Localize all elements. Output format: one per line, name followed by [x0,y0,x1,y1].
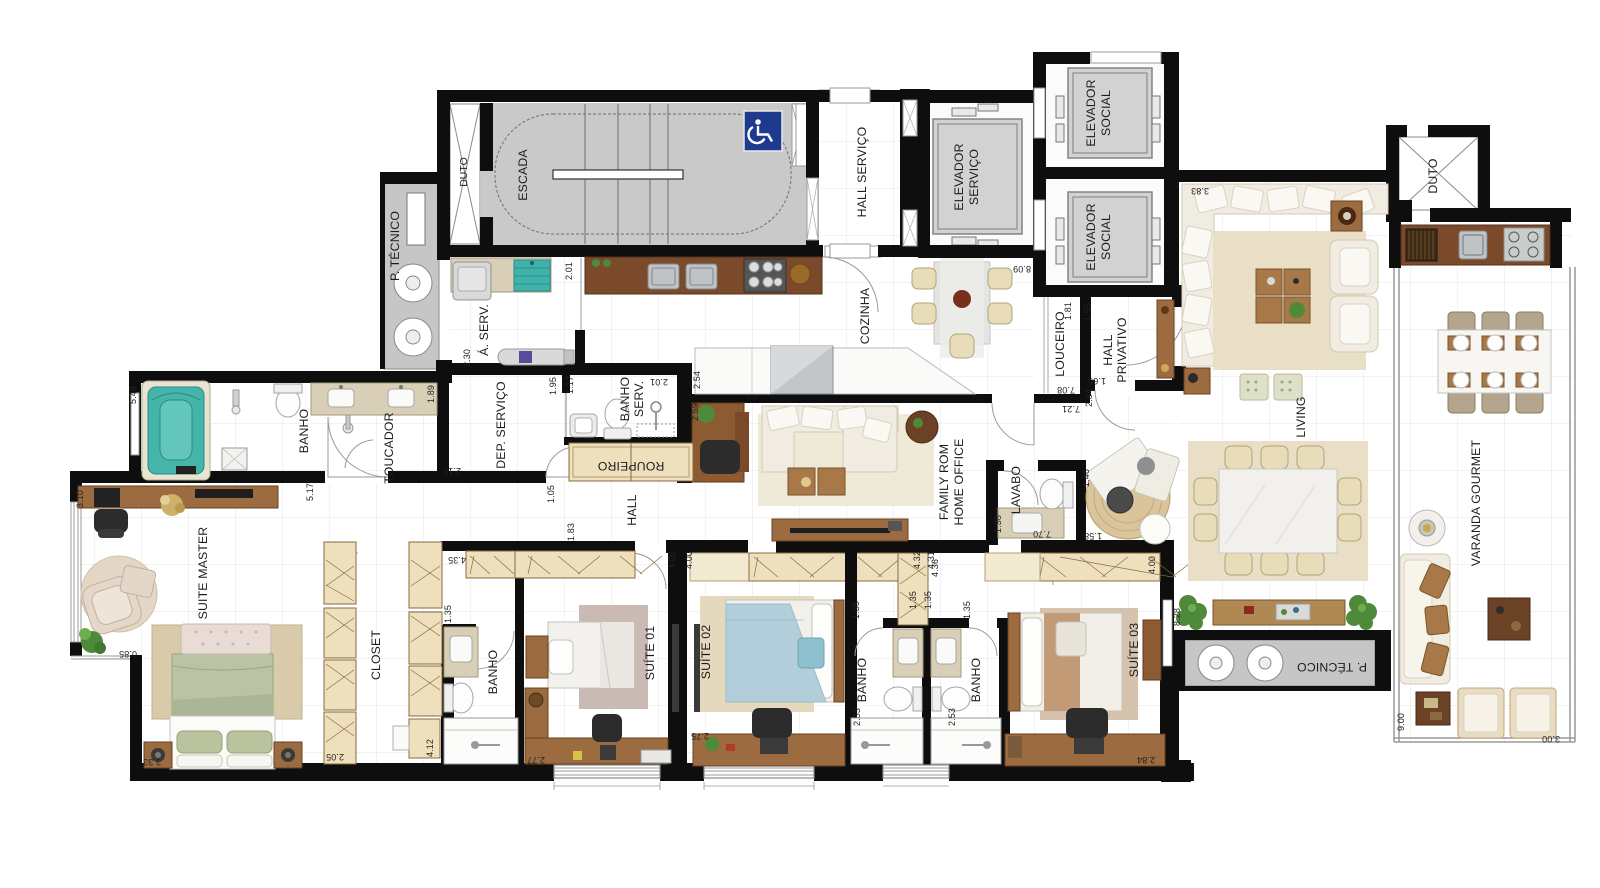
svg-text:8.28: 8.28 [1172,608,1182,626]
svg-text:ELEVADOR: ELEVADOR [952,143,966,210]
svg-text:VARANDA GOURMET: VARANDA GOURMET [1469,439,1483,566]
svg-text:4.00: 4.00 [1147,556,1157,574]
svg-text:BANHO: BANHO [297,409,311,453]
svg-text:ELEVADOR: ELEVADOR [1084,79,1098,146]
svg-text:1.05: 1.05 [546,485,556,503]
svg-text:1.60: 1.60 [1088,376,1106,386]
svg-text:2.53: 2.53 [947,708,957,726]
svg-text:1.35: 1.35 [908,591,918,609]
svg-text:4.00: 4.00 [684,551,694,569]
svg-text:HOME OFFICE: HOME OFFICE [952,438,966,525]
svg-text:LOUCEIRO: LOUCEIRO [1053,311,1067,376]
svg-text:TOUCADOR: TOUCADOR [382,412,396,483]
svg-text:8.09: 8.09 [1013,264,1031,274]
svg-text:1.38: 1.38 [993,515,1003,533]
svg-text:ESCADA: ESCADA [516,149,530,201]
svg-text:1.89: 1.89 [426,385,436,403]
svg-text:BANHO: BANHO [618,377,632,421]
svg-text:SERVIÇO: SERVIÇO [967,149,981,205]
svg-text:1.35: 1.35 [851,601,861,619]
svg-text:5.17: 5.17 [305,483,315,501]
svg-text:3.00: 3.00 [1542,734,1560,744]
svg-text:DUTO: DUTO [1426,158,1440,193]
svg-text:2.84: 2.84 [1084,389,1094,407]
svg-text:2.75: 2.75 [691,731,709,741]
svg-text:1.35: 1.35 [923,591,933,609]
svg-text:4.12: 4.12 [425,739,435,757]
svg-text:PRIVATIVO: PRIVATIVO [1115,317,1129,382]
svg-text:9.00: 9.00 [1396,713,1406,731]
svg-text:3.33: 3.33 [143,757,161,767]
svg-text:7.70: 7.70 [1033,529,1051,539]
svg-text:COZINHA: COZINHA [858,287,872,344]
svg-text:2.30: 2.30 [462,349,472,367]
svg-text:4.00: 4.00 [667,551,677,569]
svg-text:1.58: 1.58 [1084,531,1102,541]
svg-text:1.83: 1.83 [566,523,576,541]
svg-text:SUÍTE 02: SUÍTE 02 [698,625,713,680]
svg-text:HALL SERVIÇO: HALL SERVIÇO [855,127,869,218]
svg-text:2.01: 2.01 [564,262,574,280]
svg-text:1.55: 1.55 [1083,303,1093,321]
svg-text:BANHO: BANHO [855,658,869,702]
svg-text:7.08: 7.08 [1057,385,1075,395]
svg-text:LAVABO: LAVABO [1009,466,1023,514]
svg-text:2.54: 2.54 [692,371,702,389]
svg-text:BANHO: BANHO [486,650,500,694]
svg-text:2.59: 2.59 [690,403,700,421]
svg-text:DEP. SERVIÇO: DEP. SERVIÇO [494,381,508,468]
svg-text:SOCIAL: SOCIAL [1099,90,1113,136]
svg-text:4.32: 4.32 [912,551,922,569]
svg-text:ELEVADOR: ELEVADOR [1084,203,1098,270]
svg-text:1.17: 1.17 [565,376,575,394]
svg-text:2.77: 2.77 [527,755,545,765]
svg-text:SUÍTE 03: SUÍTE 03 [1126,623,1141,678]
svg-text:2.10: 2.10 [443,466,461,476]
svg-text:2.01: 2.01 [650,377,668,387]
svg-text:1.46: 1.46 [1081,469,1091,487]
svg-text:BANHO: BANHO [969,658,983,702]
svg-text:3.83: 3.83 [1191,186,1209,196]
svg-text:LIVING: LIVING [1294,396,1308,437]
svg-text:3.10: 3.10 [75,490,85,508]
svg-text:HALL: HALL [625,494,639,525]
svg-text:5.48: 5.48 [128,386,138,404]
svg-text:1.95: 1.95 [548,377,558,395]
svg-text:DUTO: DUTO [458,157,470,187]
svg-text:SUITE MASTER: SUITE MASTER [196,527,210,620]
svg-text:2.53: 2.53 [852,708,862,726]
svg-text:1.35: 1.35 [962,601,972,619]
svg-text:SERV.: SERV. [632,381,646,417]
svg-text:ROUPEIRO: ROUPEIRO [598,459,665,473]
svg-text:2.84: 2.84 [1137,755,1155,765]
svg-text:HALL: HALL [1101,334,1115,365]
svg-text:SOCIAL: SOCIAL [1099,214,1113,260]
svg-text:1.35: 1.35 [443,605,453,623]
svg-text:4.31: 4.31 [926,551,936,569]
svg-text:P. TÉCNICO: P. TÉCNICO [1297,660,1367,675]
svg-text:FAMILY ROM: FAMILY ROM [937,444,951,520]
svg-text:SUÍTE 01: SUÍTE 01 [642,626,657,681]
svg-text:4.35: 4.35 [448,555,466,565]
svg-text:1.81: 1.81 [1063,302,1073,320]
svg-text:0.85: 0.85 [119,649,137,659]
svg-text:2.05: 2.05 [326,752,344,762]
svg-text:Á. SERV.: Á. SERV. [476,304,491,356]
svg-text:7.21: 7.21 [1062,404,1080,414]
svg-text:CLOSET: CLOSET [369,630,383,680]
svg-text:P. TÉCNICO: P. TÉCNICO [387,211,402,281]
